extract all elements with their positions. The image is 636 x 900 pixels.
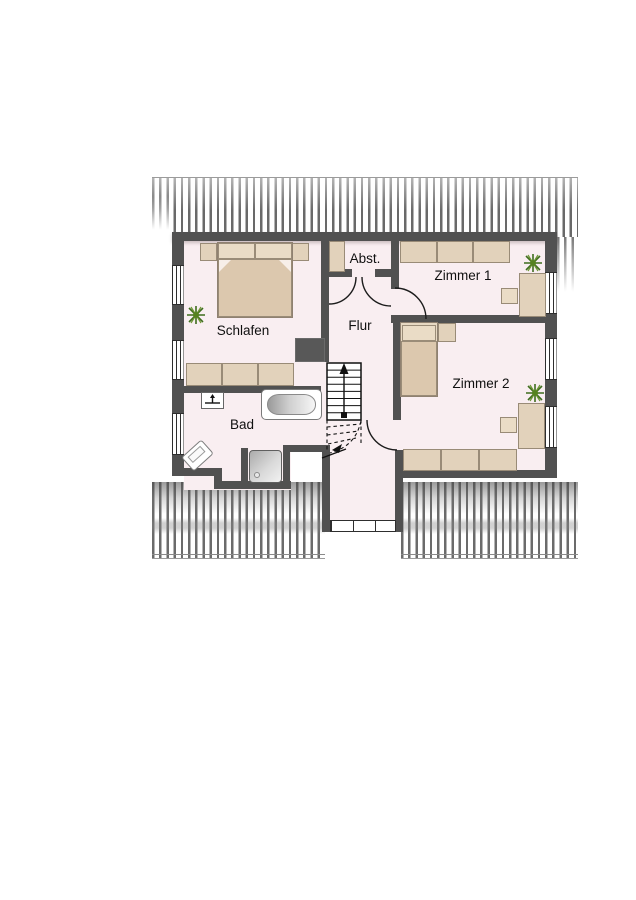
room-label-zimmer1: Zimmer 1 (418, 269, 508, 283)
door-arc-zimmer2 (367, 420, 397, 450)
plant-icon (523, 253, 543, 273)
door-arc-abst-left (329, 277, 356, 304)
room-label-abst: Abst. (341, 252, 389, 266)
room-label-schlafen: Schlafen (203, 324, 283, 338)
plant-icon (525, 383, 545, 403)
room-label-flur: Flur (336, 319, 384, 333)
door-arc-abst-right (362, 277, 391, 306)
door-arc-zimmer1 (395, 288, 426, 319)
door-arcs (0, 0, 636, 900)
plant-icon (186, 305, 206, 325)
floor-plan: Schlafen Bad Flur Abst. Zimmer 1 Zimmer … (0, 0, 636, 900)
room-label-bad: Bad (220, 418, 264, 432)
room-label-zimmer2: Zimmer 2 (436, 377, 526, 391)
